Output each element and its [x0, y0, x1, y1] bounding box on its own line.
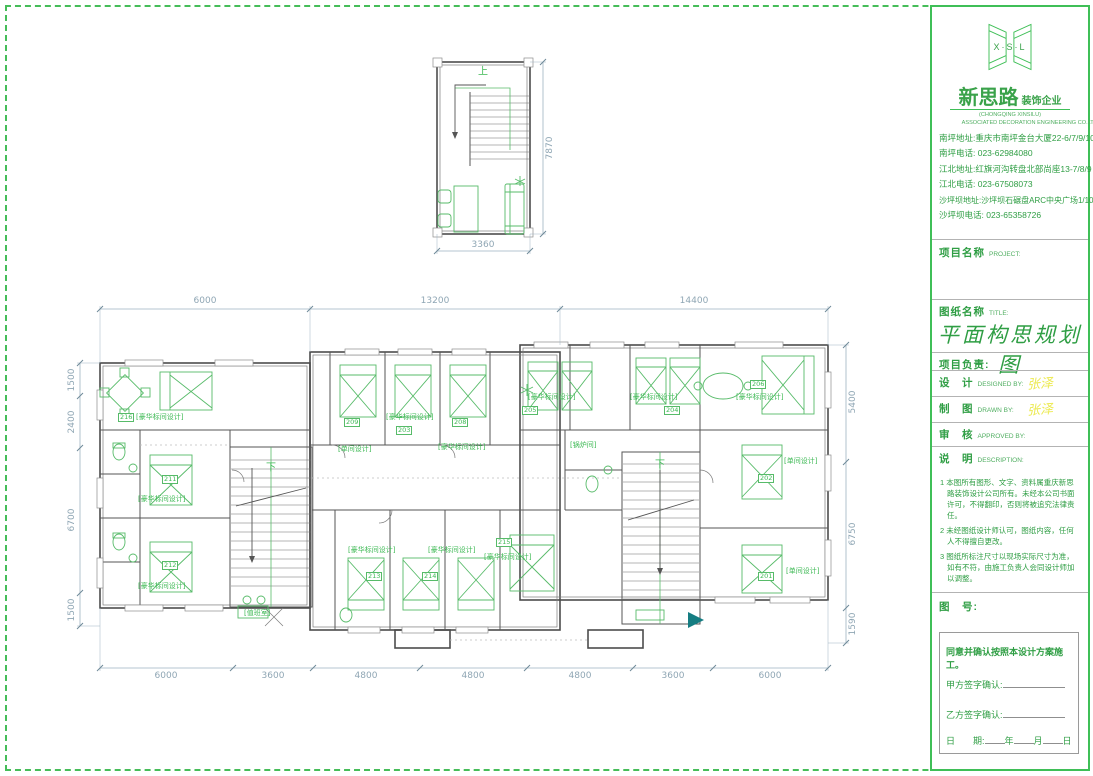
room-number: 205 — [522, 406, 538, 415]
room-label: [值班室] — [244, 610, 270, 618]
room-number: 206 — [750, 380, 766, 389]
dim-bottom-3: 4800 — [355, 671, 378, 681]
party-b-signature-line — [1003, 707, 1065, 718]
review-label: 审 核 — [939, 427, 974, 442]
dim-left-3: 6700 — [67, 509, 77, 532]
date-line — [985, 733, 1005, 744]
room-label: [豪华标间设计] — [386, 414, 433, 422]
dim-small-right: 7870 — [545, 137, 555, 160]
dim-top-1: 6000 — [194, 296, 217, 306]
dim-bottom-1: 6000 — [155, 671, 178, 681]
room-label: [豪华标间设计] — [136, 414, 183, 422]
room-label: [豪华标间设计] — [438, 444, 485, 452]
party-b-row: 乙方签字确认: — [946, 707, 1065, 721]
drafter-row: 制 图 DRAWN BY: — [939, 401, 1082, 416]
stair-up-label: 上 — [478, 63, 488, 78]
project-label-en: PROJECT: — [989, 251, 1020, 258]
dim-bottom-2: 3600 — [262, 671, 285, 681]
design-label: 设 计 — [939, 375, 974, 390]
design-label-en: DESIGNED BY: — [978, 381, 1024, 388]
dim-left-2: 2400 — [67, 411, 77, 434]
room-number: 204 — [664, 406, 680, 415]
wall-inner-lines — [103, 65, 825, 627]
room-label: [豪华标间设计] — [138, 496, 185, 504]
confirm-statement: 同意并确认按照本设计方案施工。 — [946, 645, 1078, 671]
room-number: 201 — [758, 572, 774, 581]
date-row: 日 期:年月日 — [946, 733, 1072, 747]
description-label: 说 明 — [939, 451, 974, 466]
room-label: [锅炉间] — [570, 442, 596, 450]
dimension-lines — [77, 62, 849, 671]
stair-down-left-label: 下 — [266, 459, 276, 474]
room-number: 214 — [422, 572, 438, 581]
drawing-number-row: 图 号: — [939, 599, 1082, 614]
title-block: X·S·L 新思路装饰企业 (CHONGQING XINSILU) ASSOCI… — [930, 5, 1090, 771]
address-line: 江北电话: 023-67508073 — [939, 177, 1084, 193]
stair-guides — [271, 88, 660, 624]
stair-arrows — [236, 85, 694, 575]
designer-row: 设 计 DESIGNED BY: — [939, 375, 1082, 390]
room-label: [单间设计] — [786, 568, 819, 576]
room-number: 202 — [758, 474, 774, 483]
date-month: 月 — [1034, 736, 1043, 746]
description-notes: 1 本图所有图形、文字、资料属重庆新思路装饰设计公司所有。未经本公司书面许可，不… — [940, 477, 1081, 588]
furniture — [100, 176, 814, 622]
date-day: 日 — [1063, 736, 1072, 746]
dim-bottom-5: 4800 — [569, 671, 592, 681]
dim-top-3: 14400 — [680, 296, 709, 306]
room-number: 211 — [162, 475, 178, 484]
room-label: [豪华标间设计] — [428, 547, 475, 555]
review-label-en: APPROVED BY: — [978, 433, 1026, 440]
dim-bottom-6: 3600 — [662, 671, 685, 681]
room-label: [豪华标间设计] — [630, 394, 677, 402]
confirmation-box: 同意并确认按照本设计方案施工。 甲方签字确认: 乙方签字确认: 日 期:年月日 — [939, 632, 1079, 754]
address-line: 南坪地址:重庆市南坪金台大厦22-6/7/9/10 — [939, 131, 1084, 147]
note-2: 2 未经图纸设计师认可，图纸内容，任何人不得擅自更改。 — [940, 525, 1081, 547]
party-a-signature-line — [1003, 677, 1065, 688]
logo-letters: X·S·L — [993, 42, 1026, 52]
room-number: 215 — [496, 538, 512, 547]
note-1: 1 本图所有图形、文字、资料属重庆新思路装饰设计公司所有。未经本公司书面许可，不… — [940, 477, 1081, 521]
room-label: [单间设计] — [338, 446, 371, 454]
date-year: 年 — [1005, 736, 1014, 746]
address-line: 沙坪坝地址:沙坪坝石碾盘ARC中央广场1/10/3 — [939, 193, 1075, 208]
party-b-label: 乙方签字确认: — [946, 710, 1003, 720]
drawing-number-label: 图 号: — [939, 599, 978, 614]
sheet-name-row: 图纸名称 TITLE: — [939, 304, 1082, 319]
drafter-signature: 张泽 — [1026, 398, 1053, 419]
company-en-2: ASSOCIATED DECORATION ENGINEERING CO.LTD — [932, 119, 1088, 129]
dim-right-2: 6750 — [848, 523, 858, 546]
date-line — [1043, 733, 1063, 744]
party-a-label: 甲方签字确认: — [946, 680, 1003, 690]
room-label: [单间设计] — [784, 458, 817, 466]
room-label: [豪华标间设计] — [484, 554, 531, 562]
description-label-en: DESCRIPTION: — [978, 457, 1024, 464]
stair-treads — [231, 96, 699, 599]
stair-down-right-label: 下 — [655, 456, 665, 471]
draft-label: 制 图 — [939, 401, 974, 416]
address-line: 江北地址:红旗河沟转盘北部尚座13-7/8/9 — [939, 162, 1084, 178]
company-name-suffix: 装饰企业 — [1022, 96, 1062, 107]
sheet-label: 图纸名称 — [939, 304, 985, 319]
company-name-cn: 新思路 — [959, 85, 1019, 109]
project-name-row: 项目名称 PROJECT: — [939, 245, 1082, 260]
room-number: 209 — [344, 418, 360, 427]
reviewer-row: 审 核 APPROVED BY: — [939, 427, 1082, 442]
room-number: 212 — [162, 561, 178, 570]
dim-bottom-4: 4800 — [462, 671, 485, 681]
party-a-row: 甲方签字确认: — [946, 677, 1065, 691]
room-number: 203 — [396, 426, 412, 435]
company-name: 新思路装饰企业 — [932, 81, 1088, 110]
description-row: 说 明 DESCRIPTION: — [939, 451, 1082, 466]
dim-left-1: 1500 — [67, 369, 77, 392]
dim-left-4: 1500 — [67, 599, 77, 622]
dim-bottom-7: 6000 — [759, 671, 782, 681]
date-label: 日 期: — [946, 736, 985, 746]
entry-marker — [688, 612, 704, 628]
dim-top-2: 13200 — [421, 296, 450, 306]
floor-plan-drawing — [0, 0, 930, 776]
logo-underline — [950, 109, 1070, 110]
sheet-label-en: TITLE: — [989, 310, 1009, 317]
dim-small-bottom: 3360 — [472, 240, 495, 250]
project-label: 项目名称 — [939, 245, 985, 260]
room-number: 216 — [118, 413, 134, 422]
date-line — [1014, 733, 1034, 744]
address-line: 沙坪坝电话: 023-65358726 — [939, 208, 1084, 224]
room-number: 213 — [366, 572, 382, 581]
dim-right-1: 5400 — [848, 391, 858, 414]
dim-right-3: 1590 — [848, 613, 858, 636]
address-line: 南坪电话: 023-62984080 — [939, 146, 1084, 162]
room-label: [豪华标间设计] — [348, 547, 395, 555]
room-number: 208 — [452, 418, 468, 427]
room-label: [豪华标间设计] — [736, 394, 783, 402]
draft-label-en: DRAWN BY: — [978, 407, 1014, 414]
designer-signature: 张泽 — [1026, 372, 1053, 393]
room-label: [豪华标间设计] — [138, 583, 185, 591]
cad-drawing-sheet: { "title_block": { "logo": { "letters": … — [0, 0, 1093, 776]
room-label: [豪华标间设计] — [528, 394, 575, 402]
note-3: 3 图纸所标注尺寸以现场实际尺寸为准，如有不符，由施工负责人会同设计师加以调整。 — [940, 551, 1081, 584]
